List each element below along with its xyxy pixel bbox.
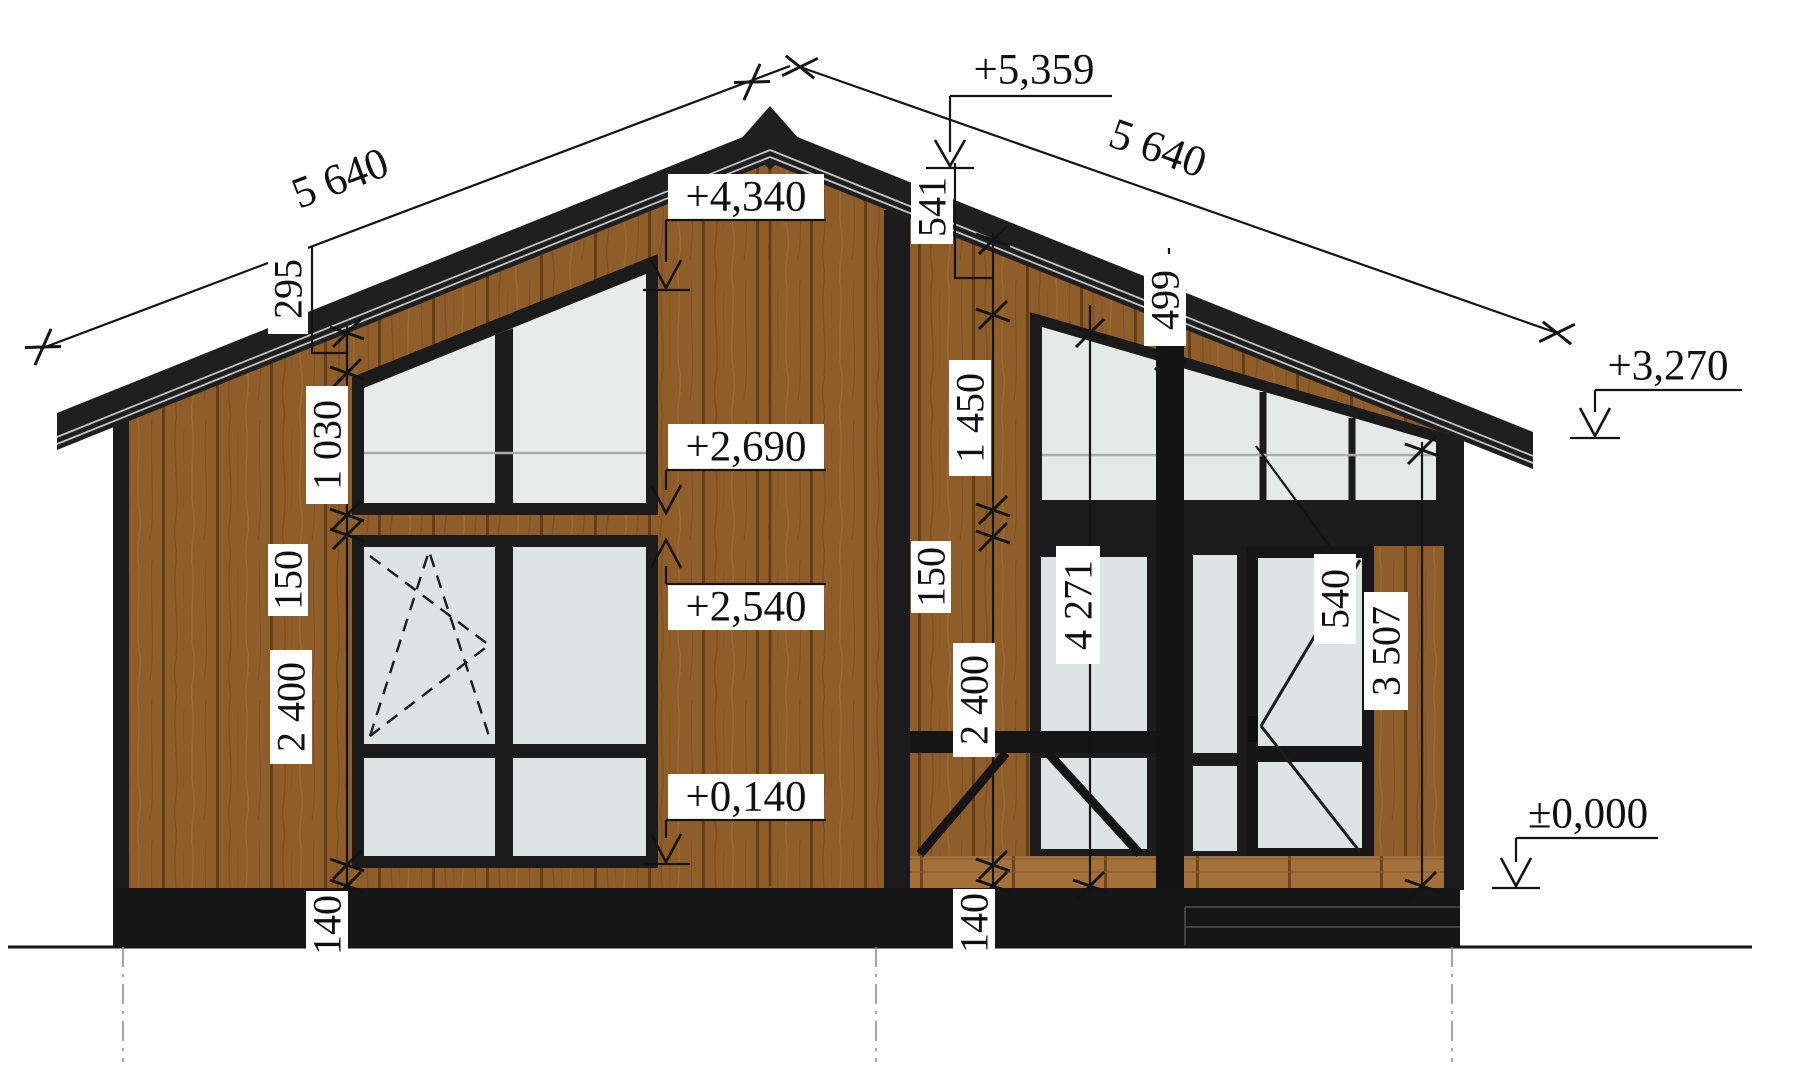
dim-ridge-offset: 541 xyxy=(910,177,955,237)
dim-clerestory-height: 1 450 xyxy=(948,373,993,463)
dim-eave-offset: 295 xyxy=(266,259,311,319)
glazing-header-band xyxy=(1030,500,1448,546)
glazing-post xyxy=(1156,316,1184,888)
rail-beam xyxy=(908,731,1158,753)
elevation-mark-ridge: +5,359 xyxy=(926,47,1112,169)
dim-left-gap: 150 xyxy=(266,550,311,610)
elevation-mark-right-eave: +3,270 xyxy=(1570,343,1742,439)
gable-window-mullion xyxy=(495,328,513,503)
left-window-mullion xyxy=(495,547,513,856)
level-window-head: +2,540 xyxy=(685,584,806,631)
dim-left-window-height: 2 400 xyxy=(269,662,314,752)
elevation-mark-ground-floor: ±0,000 xyxy=(1492,791,1658,889)
dim-gable-window-height: 1 030 xyxy=(305,400,350,490)
level-ground-floor: ±0,000 xyxy=(1528,791,1648,838)
level-window-sill: +0,140 xyxy=(685,774,806,821)
level-gable-window-bottom: +2,690 xyxy=(685,424,806,471)
dim-roof-right: 5 640 xyxy=(1103,108,1213,187)
centerlines xyxy=(123,947,1452,1062)
door-rail xyxy=(1258,746,1362,762)
dim-roof-left: 5 640 xyxy=(285,138,395,219)
dim-right-wall-height: 3 507 xyxy=(1364,606,1409,696)
dim-glazing-total-height: 4 271 xyxy=(1056,560,1101,650)
level-right-eave: +3,270 xyxy=(1607,343,1728,390)
dim-center-gap: 150 xyxy=(909,547,954,607)
corner-board-mid xyxy=(884,210,910,890)
dim-roof-gap: 499 xyxy=(1143,270,1188,330)
left-window xyxy=(352,535,658,868)
sidelight-glass xyxy=(1193,555,1237,851)
corner-board-right xyxy=(1444,430,1464,890)
dim-left-floor-thickness: 140 xyxy=(305,895,350,955)
dim-clerestory-end-height: 540 xyxy=(1313,569,1358,629)
door-handle xyxy=(1248,716,1257,742)
left-window-transom xyxy=(364,744,646,758)
dim-center-window-height: 2 400 xyxy=(952,655,997,745)
level-ridge: +5,359 xyxy=(973,47,1094,94)
corner-board-left xyxy=(113,418,129,890)
elevation-drawing: 5 640 5 640 295 1 030 150 2 400 140 541 … xyxy=(0,0,1807,1080)
level-gable-window-top: +4,340 xyxy=(685,174,806,221)
sidelight-transom xyxy=(1193,753,1237,766)
dim-center-floor-thickness: 140 xyxy=(952,893,997,953)
elevation-drawing-page: 5 640 5 640 295 1 030 150 2 400 140 541 … xyxy=(0,0,1807,1080)
